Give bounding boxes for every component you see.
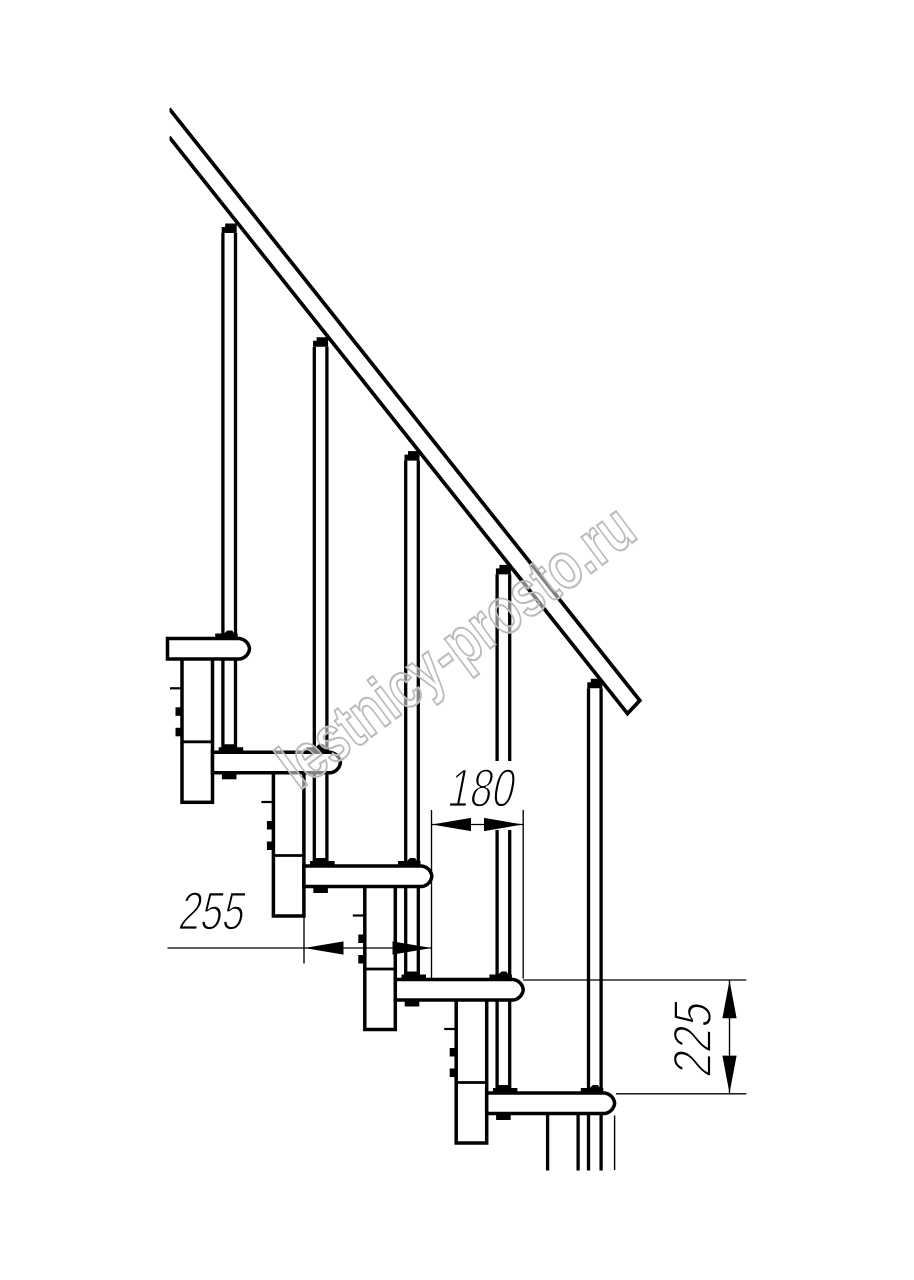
svg-text:255: 255: [175, 881, 252, 941]
svg-text:180: 180: [444, 758, 522, 818]
svg-text:225: 225: [662, 995, 722, 1081]
